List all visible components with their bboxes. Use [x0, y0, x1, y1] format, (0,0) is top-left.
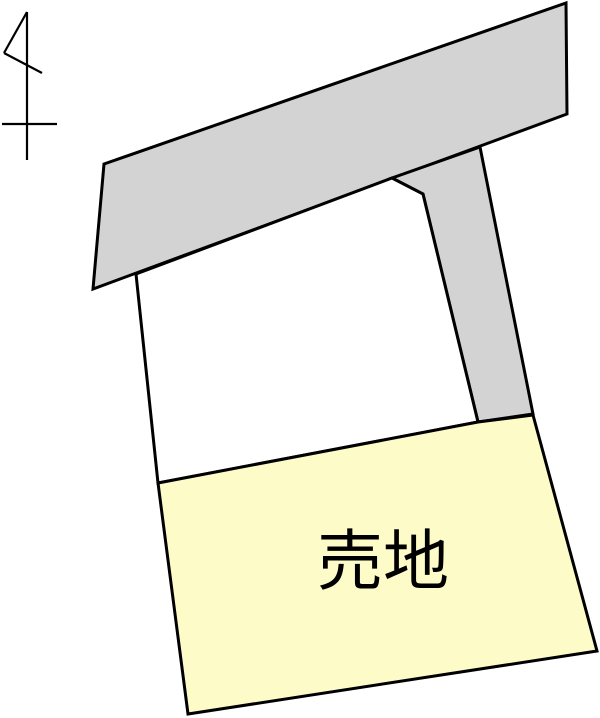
site-map-canvas: 売地 — [0, 0, 600, 718]
plot-map: 売地 — [0, 0, 600, 718]
north-arrow-icon — [2, 12, 57, 160]
plot-shapes-layer — [93, 3, 597, 714]
sale-label: 売地 — [317, 523, 449, 600]
north-arrow-line — [4, 53, 42, 73]
north-arrow-line — [4, 12, 27, 53]
